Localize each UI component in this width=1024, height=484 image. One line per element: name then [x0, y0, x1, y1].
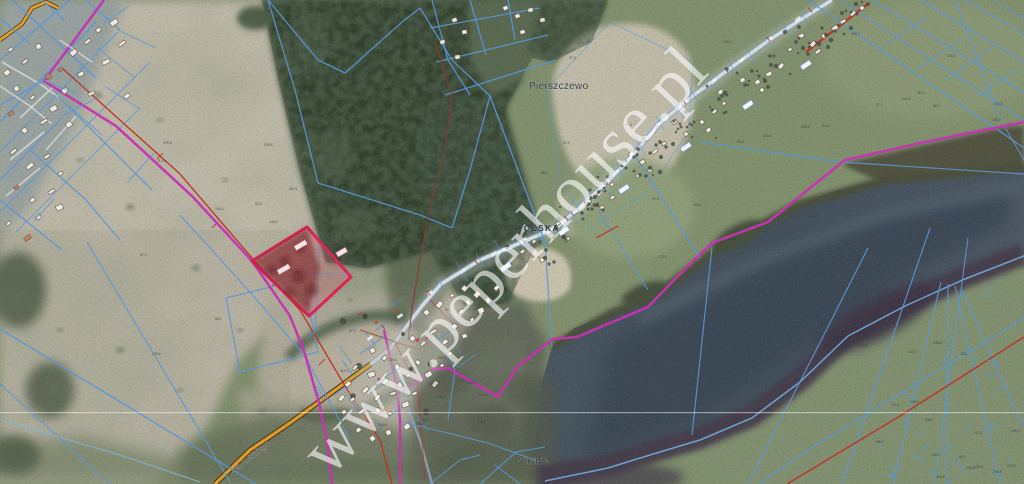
- svg-text:POLSKA: POLSKA: [517, 224, 560, 233]
